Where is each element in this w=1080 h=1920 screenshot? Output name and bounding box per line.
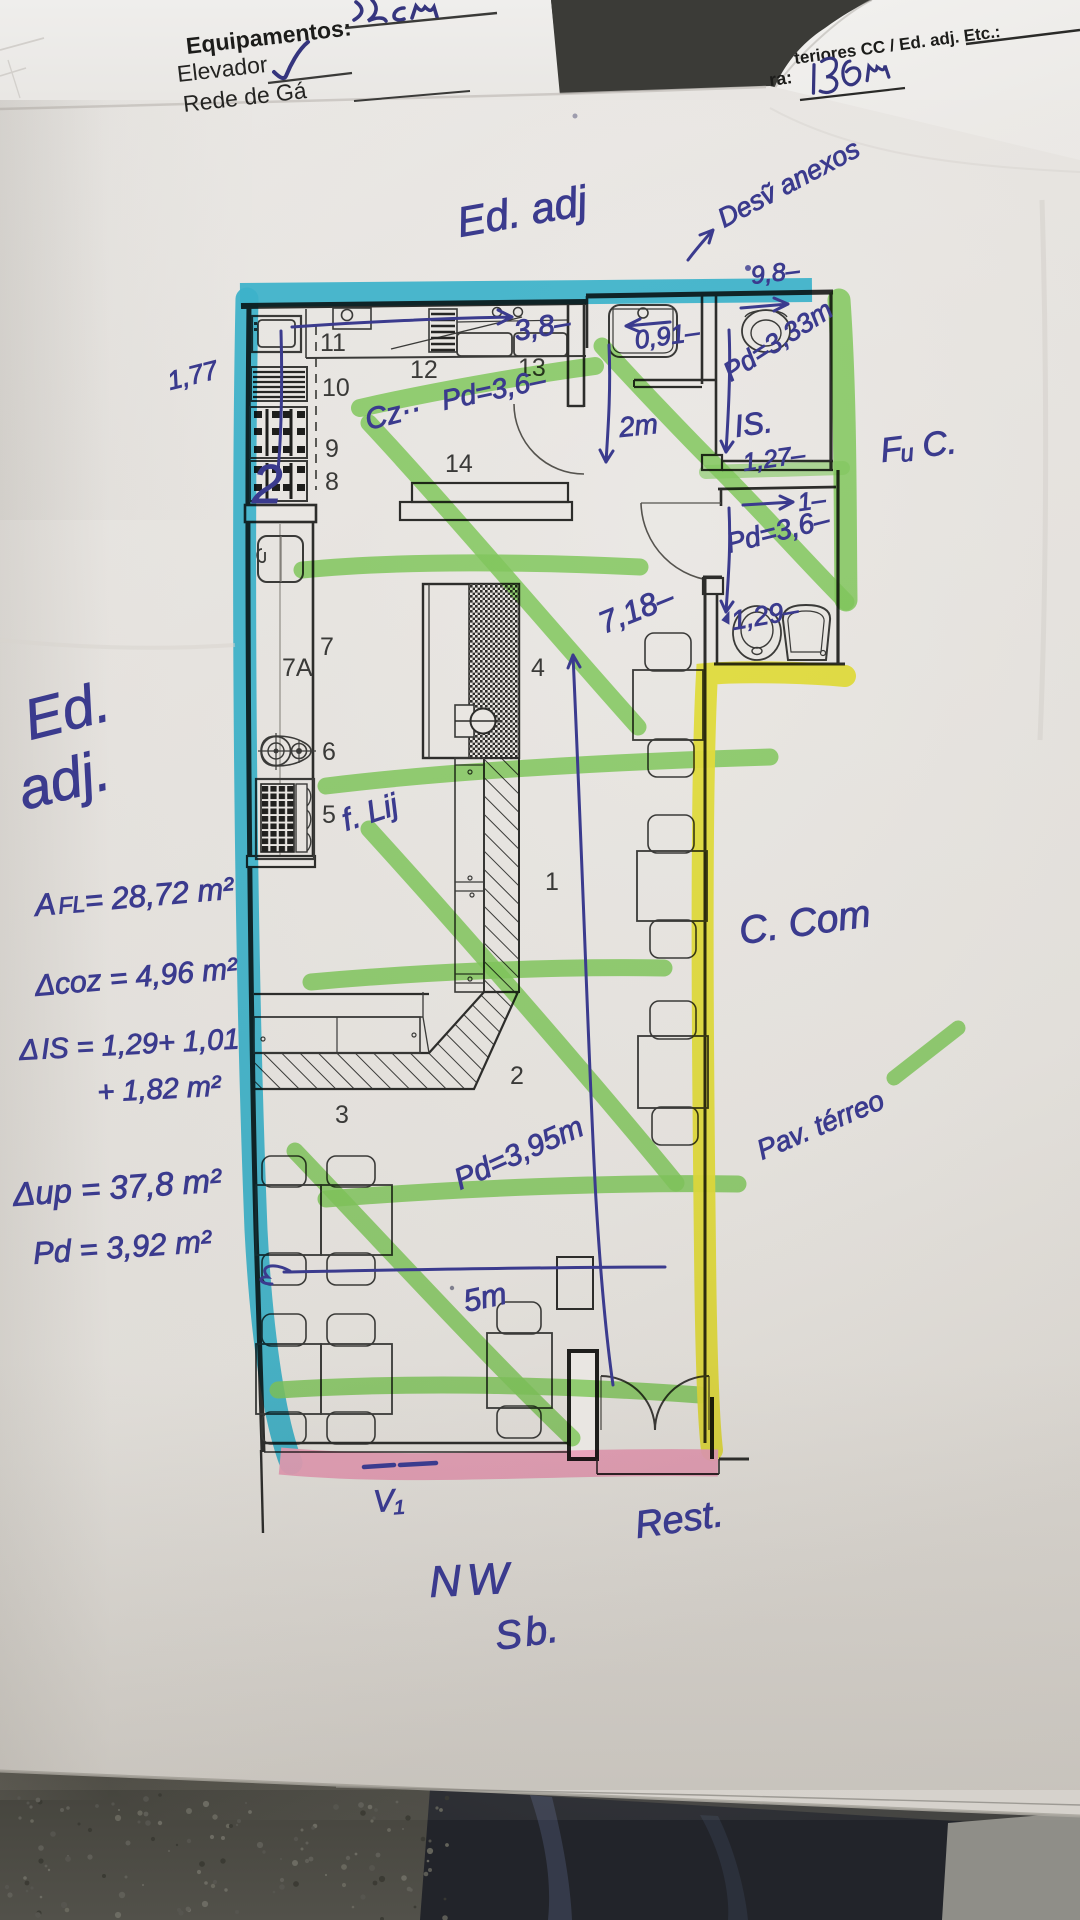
svg-text:2: 2	[510, 1062, 524, 1090]
svg-text:8: 8	[325, 468, 339, 496]
svg-text:3: 3	[335, 1101, 349, 1129]
svg-text:14: 14	[445, 450, 473, 478]
svg-text:2m: 2m	[616, 408, 659, 443]
svg-text:2: 2	[251, 453, 283, 515]
svg-text:10: 10	[322, 374, 350, 402]
svg-text:11: 11	[320, 329, 346, 357]
svg-text:S b.: S b.	[492, 1607, 561, 1659]
svg-text:1: 1	[545, 868, 559, 896]
svg-text:7: 7	[320, 633, 334, 661]
svg-text:7A: 7A	[282, 654, 313, 682]
svg-text:4: 4	[531, 654, 545, 682]
svg-text:9: 9	[325, 435, 339, 463]
svg-text:5: 5	[322, 801, 336, 829]
svg-text:+ 1,82 m²: + 1,82 m²	[97, 1070, 223, 1108]
svg-text:V₁: V₁	[372, 1482, 405, 1519]
svg-text:ra:: ra:	[768, 67, 793, 90]
svg-text:12: 12	[410, 356, 438, 384]
svg-text:6: 6	[322, 738, 336, 766]
svg-text:IS.: IS.	[732, 404, 774, 444]
svg-text:NW: NW	[428, 1554, 516, 1607]
